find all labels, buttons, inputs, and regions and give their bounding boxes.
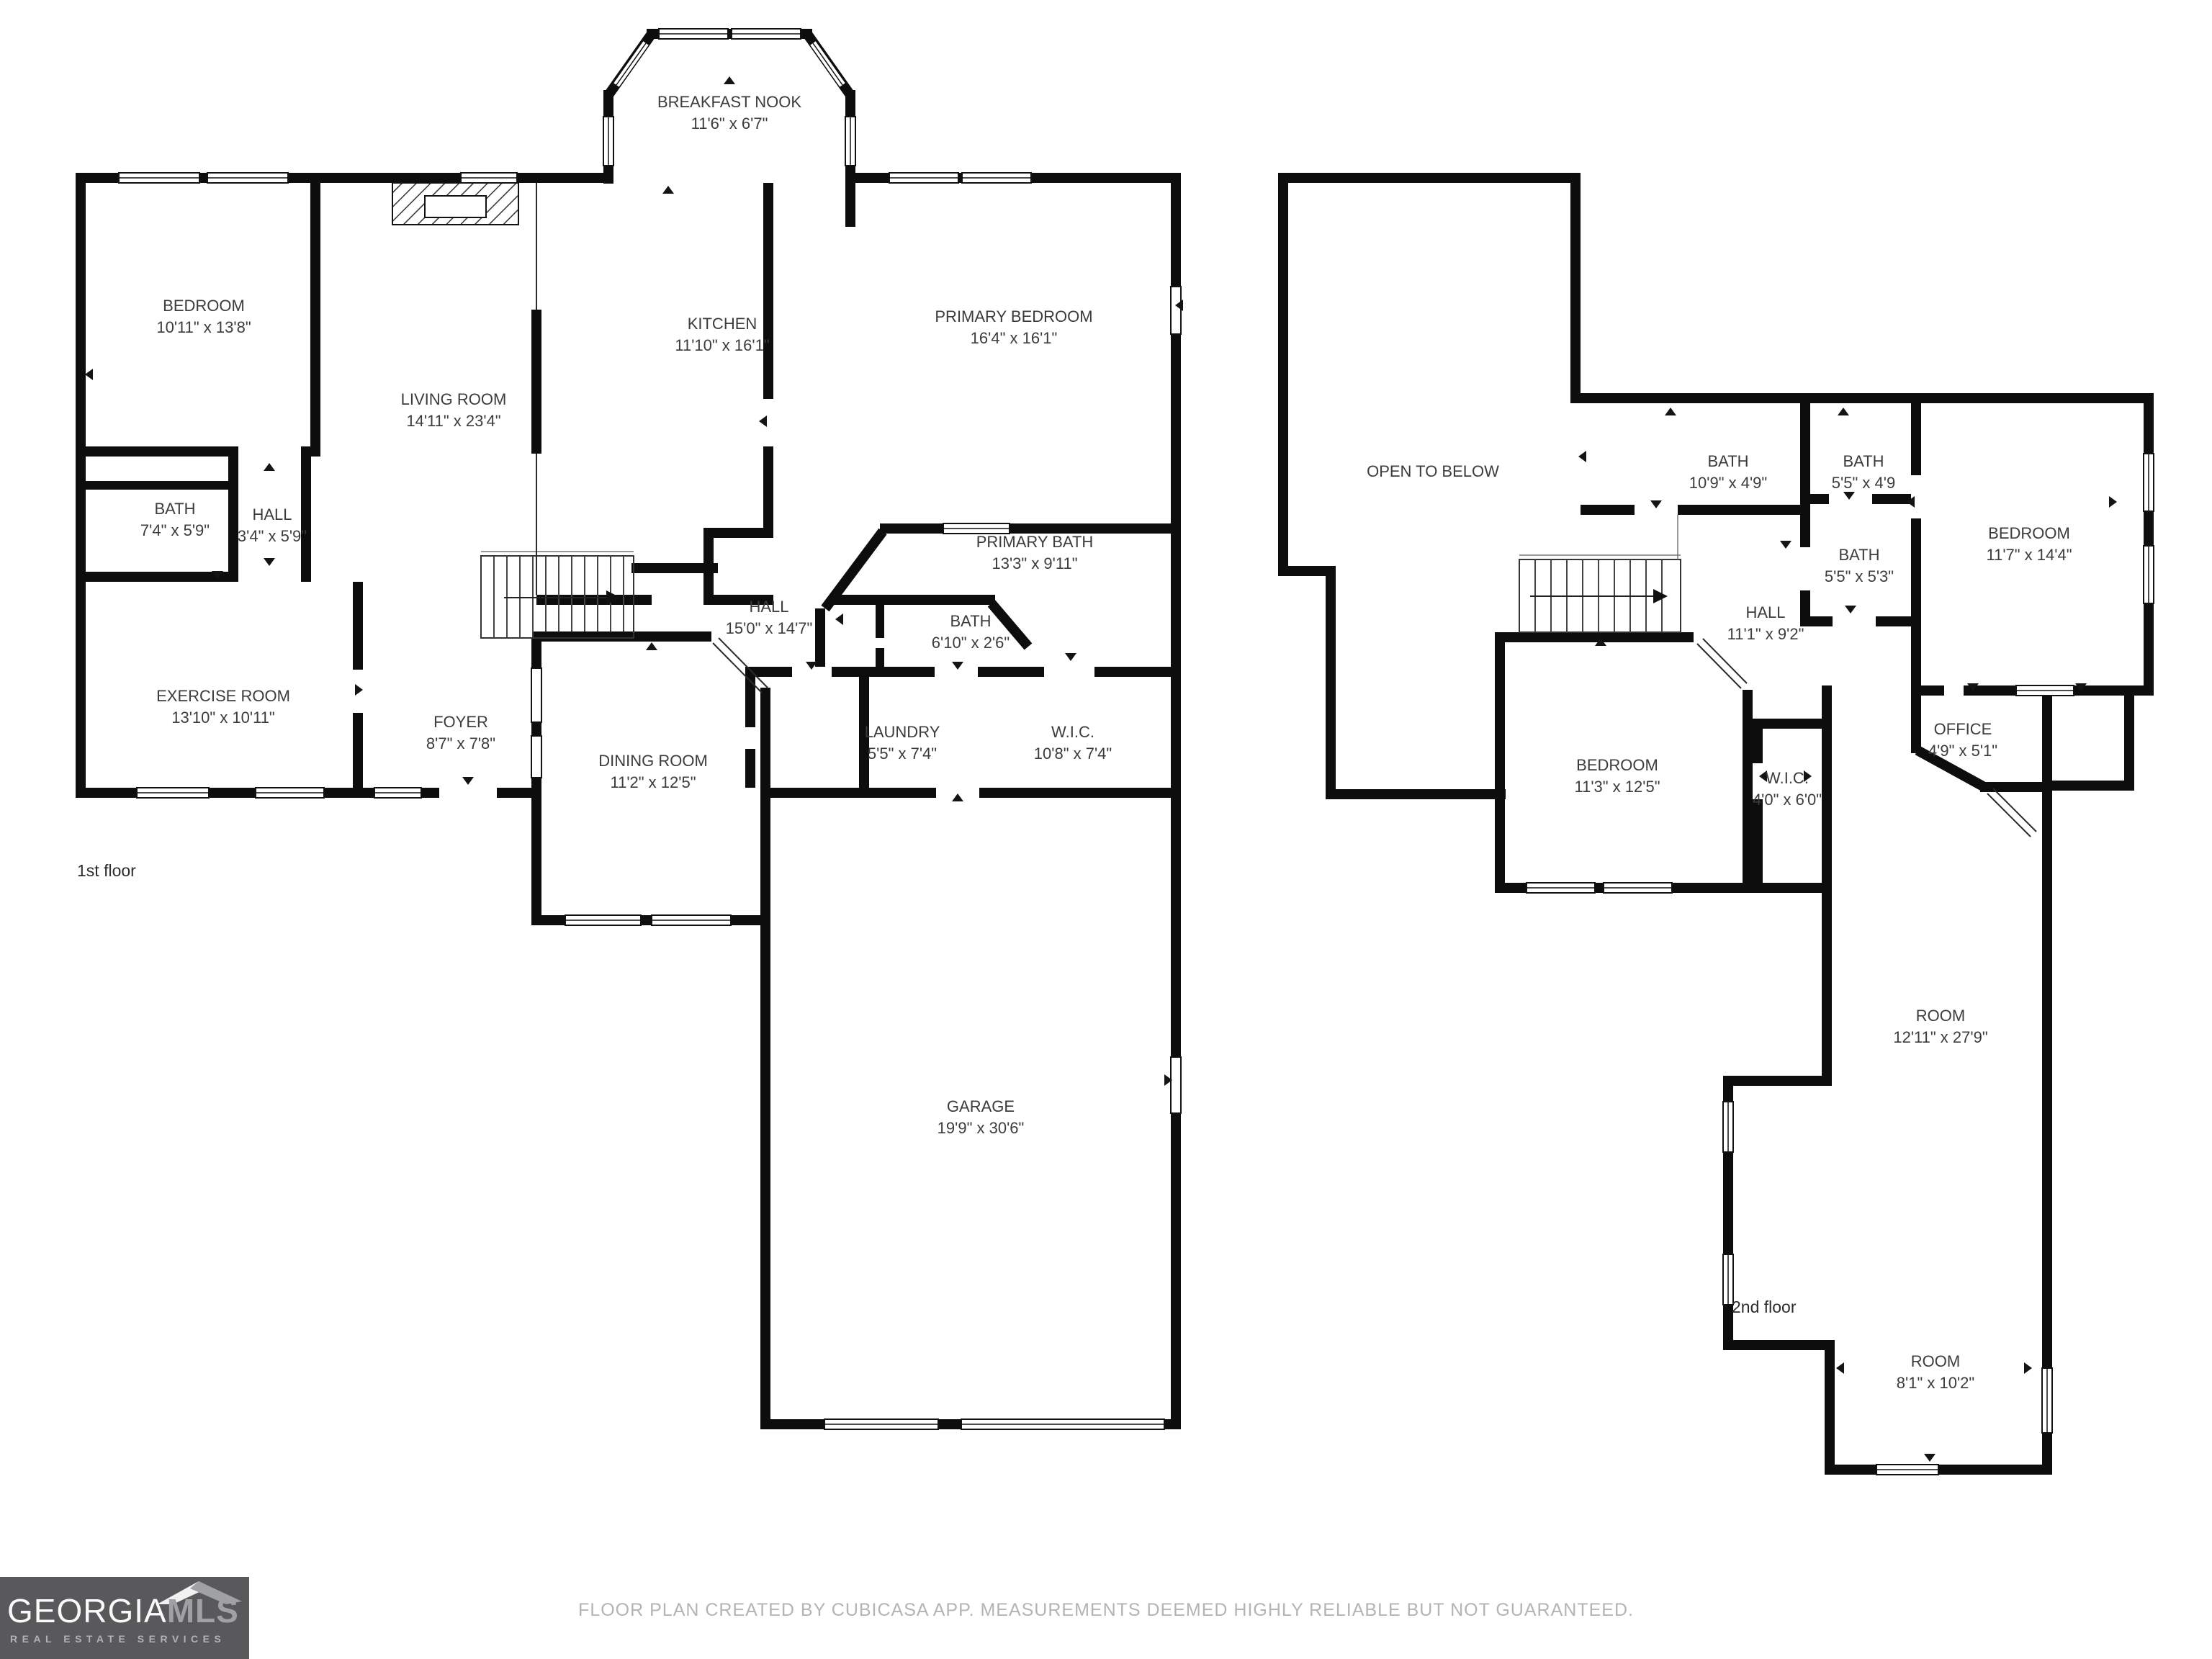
room-label-hall-f2: HALL 11'1" x 9'2" [1727,602,1804,645]
room-label-garage: GARAGE 19'9" x 30'6" [938,1096,1025,1139]
room-label-dining-room: DINING ROOM 11'2" x 12'5" [598,750,708,793]
room-label-room-small: ROOM 8'1" x 10'2" [1897,1351,1974,1394]
floor1-caption: 1st floor [77,861,136,881]
logo-brand: GEORGIAMLS [7,1594,239,1627]
room-label-exercise-room: EXERCISE ROOM 13'10" x 10'11" [156,685,290,729]
floor1-walls [76,29,1181,1429]
floor2-walls [1278,173,2154,1475]
fireplace [392,183,518,225]
floorplan-page: { "footer": { "text": "FLOOR PLAN CREATE… [0,0,2212,1659]
room-label-bath-mid-f2: BATH 5'5" x 5'3" [1825,544,1894,588]
floor2-stairs [1519,515,1681,632]
room-label-laundry: LAUNDRY 5'5" x 7'4" [865,721,940,765]
logo-brand-primary: GEORGIA [7,1592,167,1629]
room-label-hall-main-f1: HALL 15'0" x 14'7" [726,596,813,639]
room-label-bath-upper-f2: BATH 5'5" x 4'9 [1832,451,1895,494]
floorplan-geometry [0,0,2212,1659]
room-label-bath-small-f1: BATH 6'10" x 2'6" [932,611,1010,654]
room-label-bedroom-left-f2: BEDROOM 11'3" x 12'5" [1574,755,1660,798]
room-label-open-to-below: OPEN TO BELOW [1367,461,1499,482]
room-label-wic-f1: W.I.C. 10'8" x 7'4" [1034,721,1112,765]
room-label-hall-small-f1: HALL 3'4" x 5'9" [238,504,307,547]
logo-tagline: REAL ESTATE SERVICES [10,1633,225,1645]
room-label-wic-f2: W.I.C. 4'0" x 6'0" [1753,768,1822,811]
floor2-windows [1527,454,2154,1475]
room-label-foyer: FOYER 8'7" x 7'8" [426,711,495,755]
room-label-office: OFFICE 4'9" x 5'1" [1928,719,1997,762]
georgia-mls-logo: GEORGIAMLS REAL ESTATE SERVICES [0,1577,249,1659]
floor1-windows [119,29,1181,1429]
room-label-living-room: LIVING ROOM 14'11" x 23'4" [401,389,507,432]
room-label-bath-hall-f2: BATH 10'9" x 4'9" [1689,451,1767,494]
logo-brand-secondary: MLS [167,1592,239,1629]
room-label-room-large: ROOM 12'11" x 27'9" [1893,1005,1987,1048]
room-label-primary-bath: PRIMARY BATH 13'3" x 9'11" [976,531,1094,575]
room-label-kitchen: KITCHEN 11'10" x 16'1" [675,313,769,356]
room-label-bedroom-f1: BEDROOM 10'11" x 13'8" [156,295,251,338]
room-label-breakfast-nook: BREAKFAST NOOK 11'6" x 6'7" [657,91,801,135]
floor2-stairs-arrow [1653,589,1668,603]
footer-disclaimer: FLOOR PLAN CREATED BY CUBICASA APP. MEAS… [578,1600,1634,1621]
room-label-bath-f1: BATH 7'4" x 5'9" [140,498,210,541]
room-label-primary-bedroom: PRIMARY BEDROOM 16'4" x 16'1" [935,306,1092,349]
room-label-bedroom-right-f2: BEDROOM 11'7" x 14'4" [1986,523,2072,566]
floor2-caption: 2nd floor [1732,1298,1797,1317]
